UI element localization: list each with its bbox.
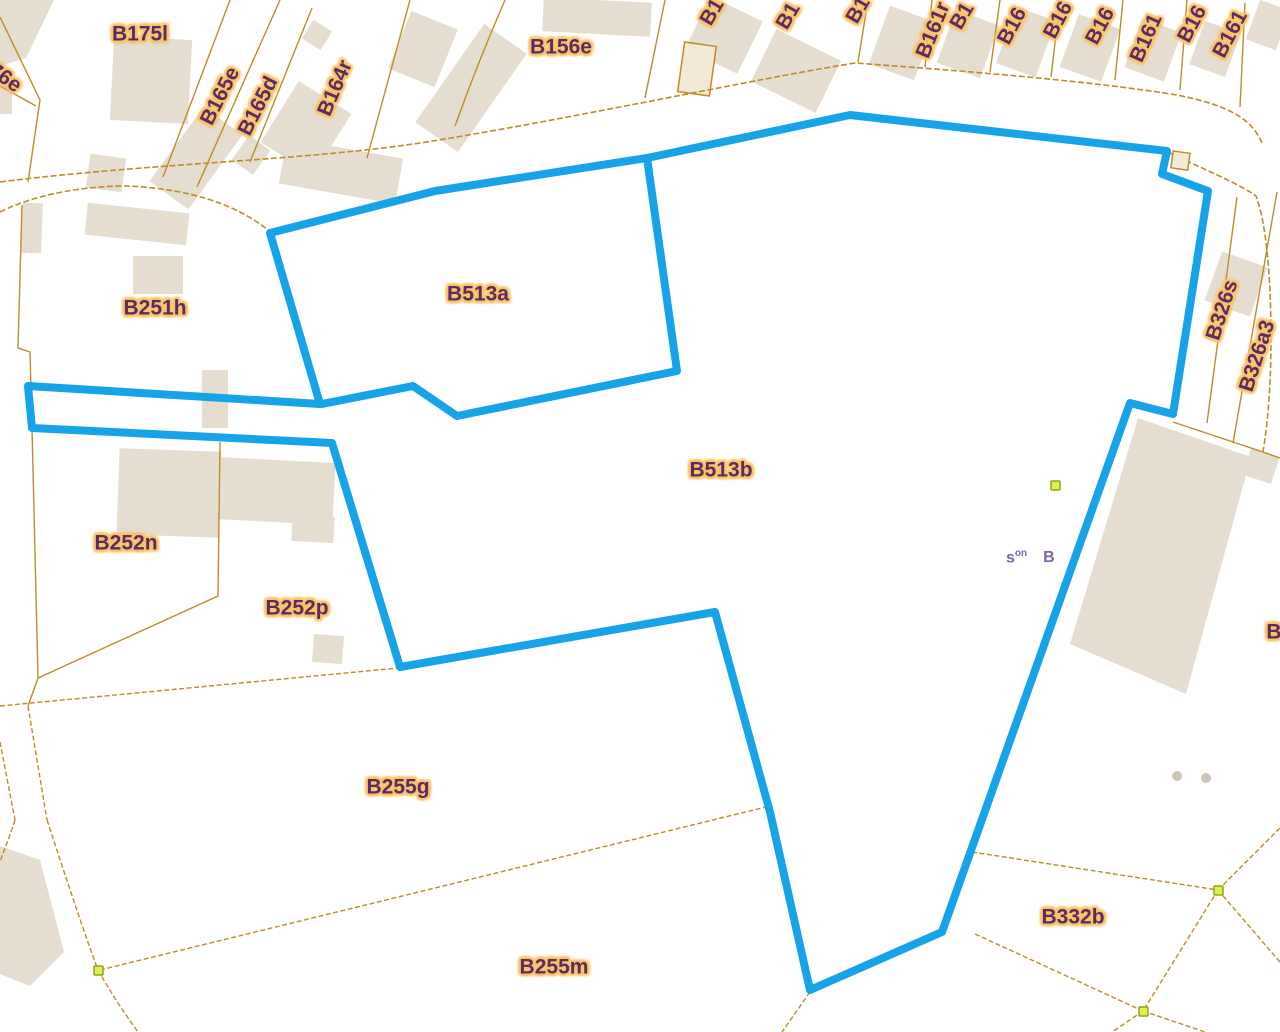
parcel-label-b156e: B156e [530, 37, 592, 58]
parcel-label-b332b: B332b [1041, 907, 1104, 928]
map-dot [1201, 773, 1211, 783]
parcel-label-b255g: B255g [366, 777, 429, 798]
parcel-label-b513a: B513a [447, 284, 509, 305]
map-base-layer [0, 0, 1280, 1032]
road-lines-group [0, 63, 1271, 452]
parcel-label-edge-partial: B [1266, 622, 1280, 643]
map-annotation: sonB [1006, 548, 1055, 567]
map-dot [1172, 771, 1182, 781]
parcel-label-b251h: B251h [123, 298, 186, 319]
field-lines-group [0, 668, 1280, 1032]
cadastral-map-canvas[interactable]: sonB B176e B175l B165e B165d B164r B156e… [0, 0, 1280, 1032]
parcel-label-b252p: B252p [265, 598, 328, 619]
parcel-label-b513b: B513b [689, 460, 752, 481]
parcel-label-b175l: B175l [112, 24, 168, 45]
parcel-label-b252n: B252n [94, 533, 157, 554]
parcel-label-b255m: B255m [520, 957, 589, 978]
